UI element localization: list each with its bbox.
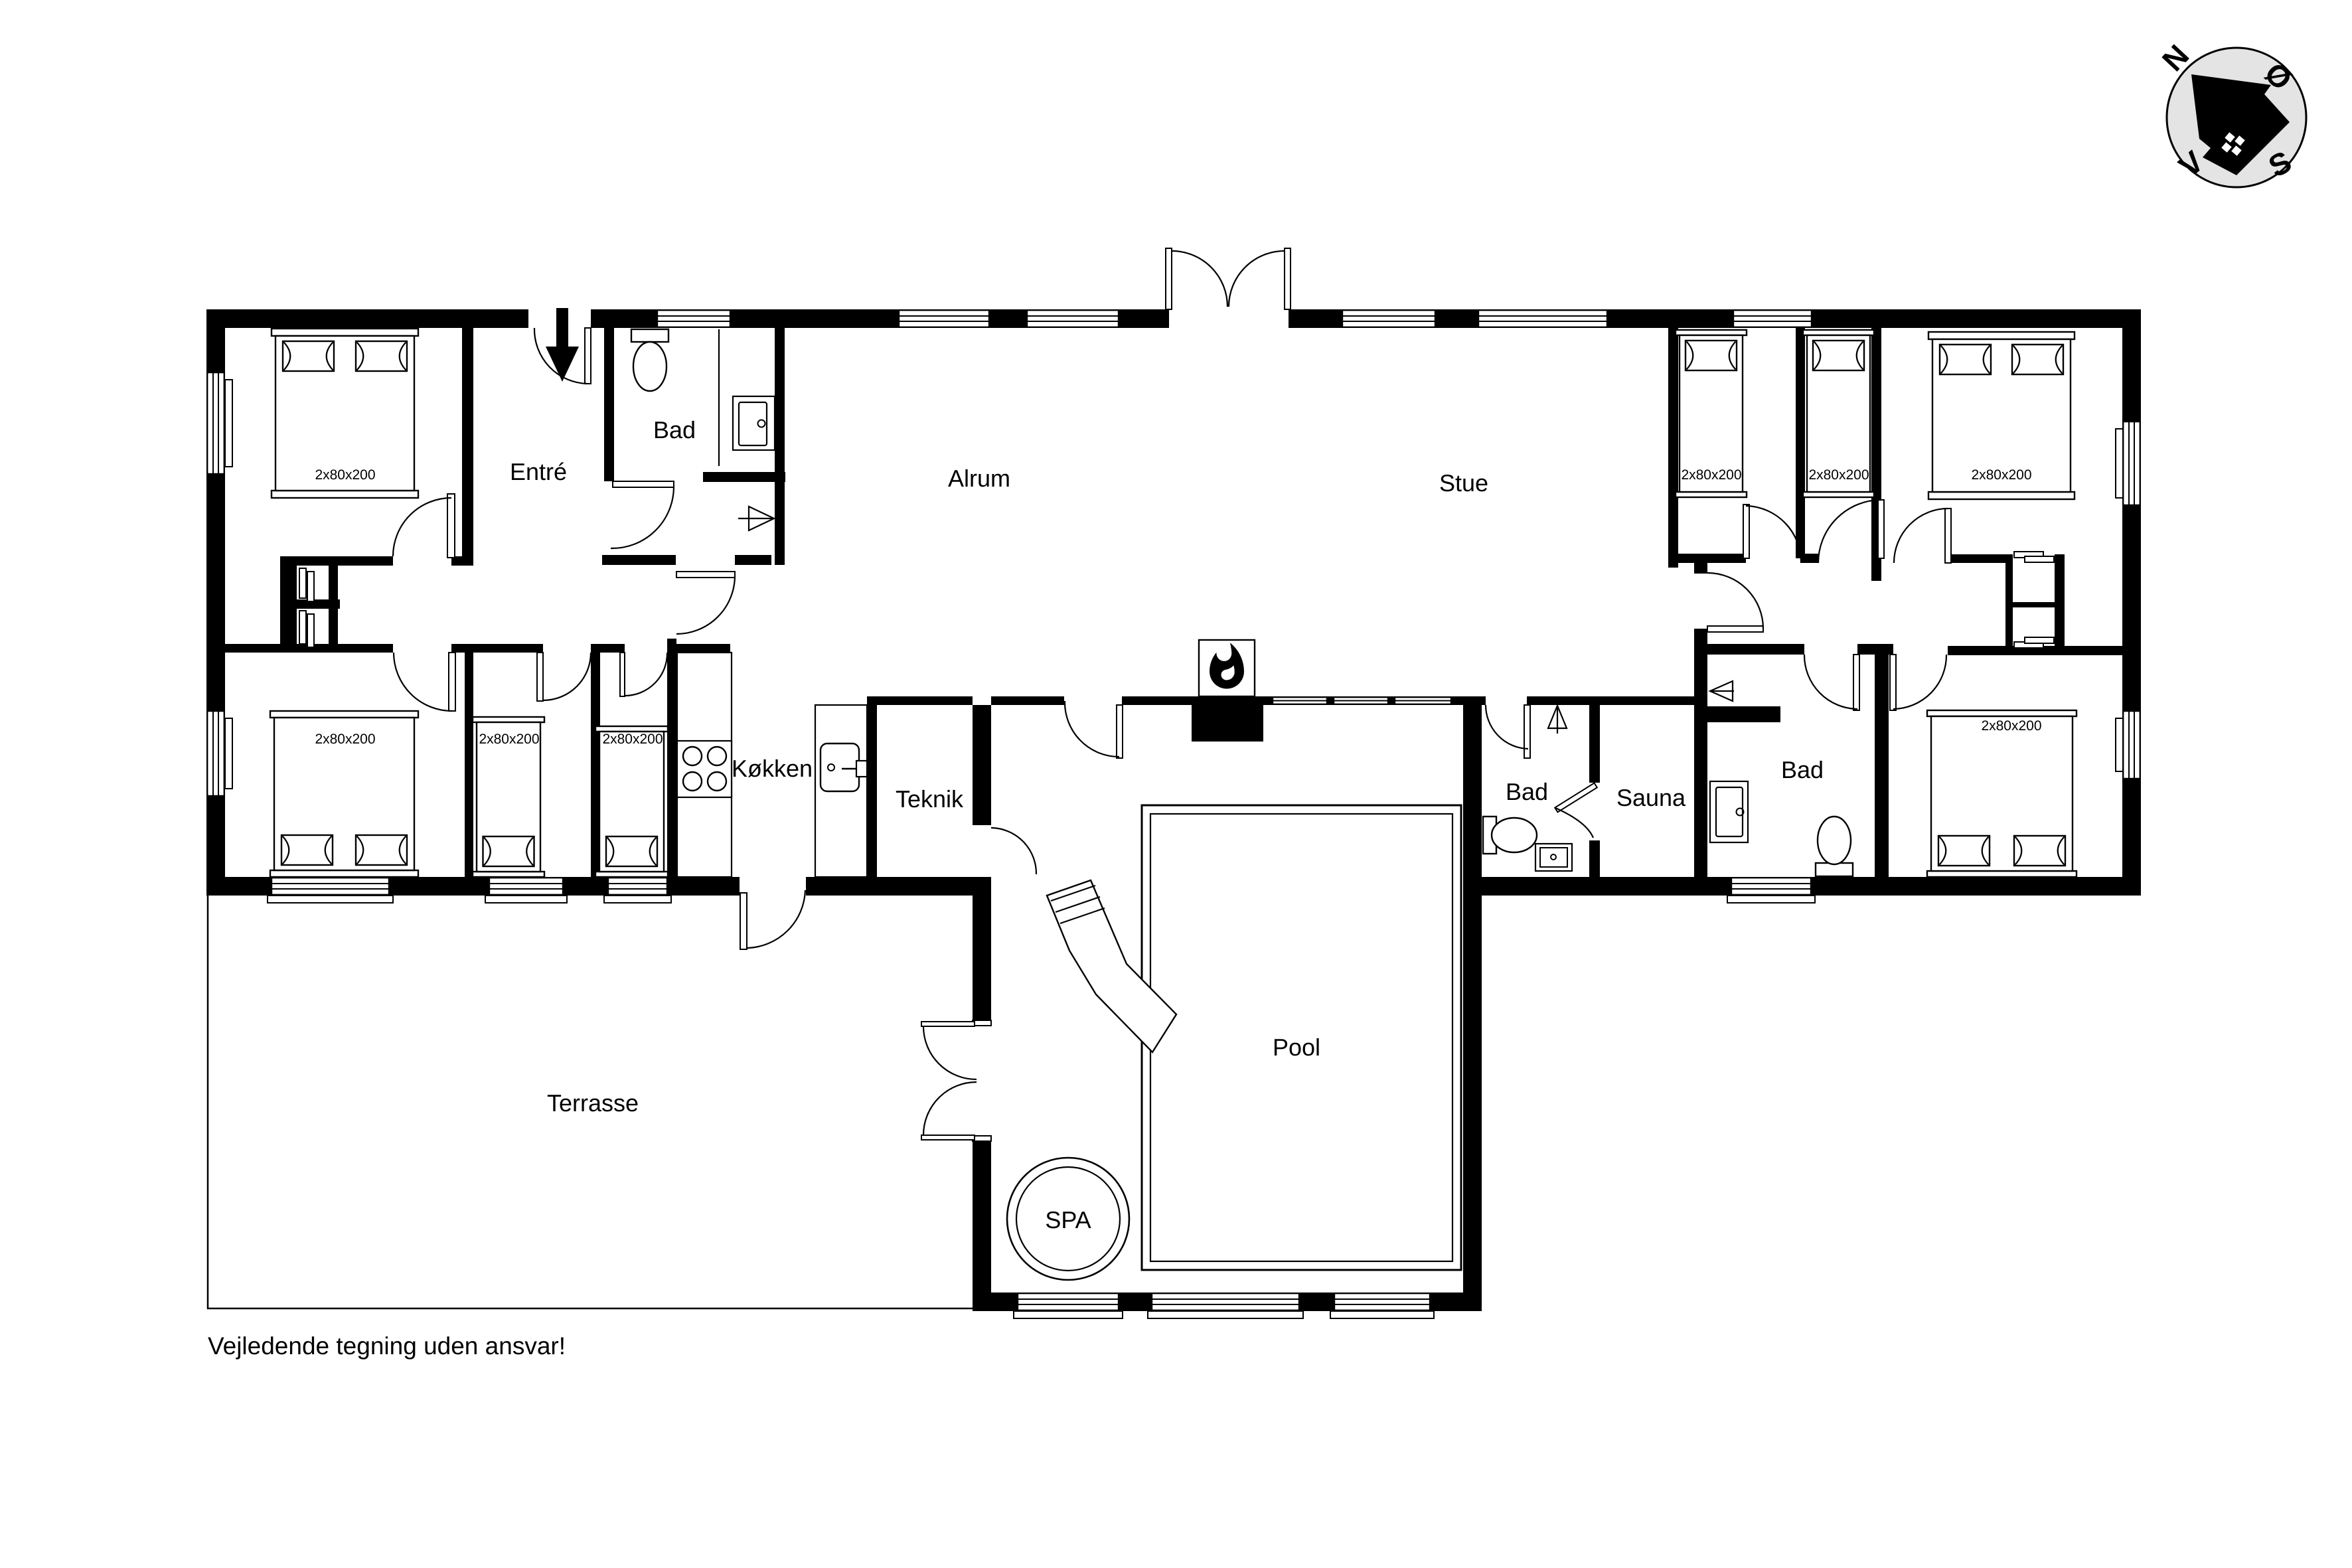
svg-text:Terrasse: Terrasse: [547, 1089, 639, 1117]
svg-text:2x80x200: 2x80x200: [1981, 718, 2041, 734]
svg-text:2x80x200: 2x80x200: [315, 732, 375, 747]
svg-text:Bad: Bad: [1506, 778, 1548, 805]
svg-text:2x80x200: 2x80x200: [602, 732, 663, 747]
svg-text:Teknik: Teknik: [896, 785, 964, 813]
svg-text:2x80x200: 2x80x200: [1971, 467, 2031, 483]
svg-text:Pool: Pool: [1273, 1034, 1320, 1061]
svg-text:Bad: Bad: [653, 416, 696, 443]
svg-text:SPA: SPA: [1045, 1206, 1091, 1233]
svg-text:Sauna: Sauna: [1616, 784, 1686, 811]
svg-text:Entré: Entré: [510, 458, 567, 485]
svg-text:Alrum: Alrum: [948, 465, 1010, 492]
svg-text:2x80x200: 2x80x200: [1681, 467, 1741, 483]
svg-text:Vejledende tegning uden ansvar: Vejledende tegning uden ansvar!: [208, 1332, 566, 1360]
svg-text:Køkken: Køkken: [732, 755, 813, 782]
svg-text:Bad: Bad: [1781, 756, 1824, 783]
svg-text:2x80x200: 2x80x200: [479, 732, 539, 747]
svg-text:Stue: Stue: [1439, 469, 1488, 497]
svg-text:2x80x200: 2x80x200: [1808, 467, 1869, 483]
svg-text:2x80x200: 2x80x200: [315, 467, 375, 483]
